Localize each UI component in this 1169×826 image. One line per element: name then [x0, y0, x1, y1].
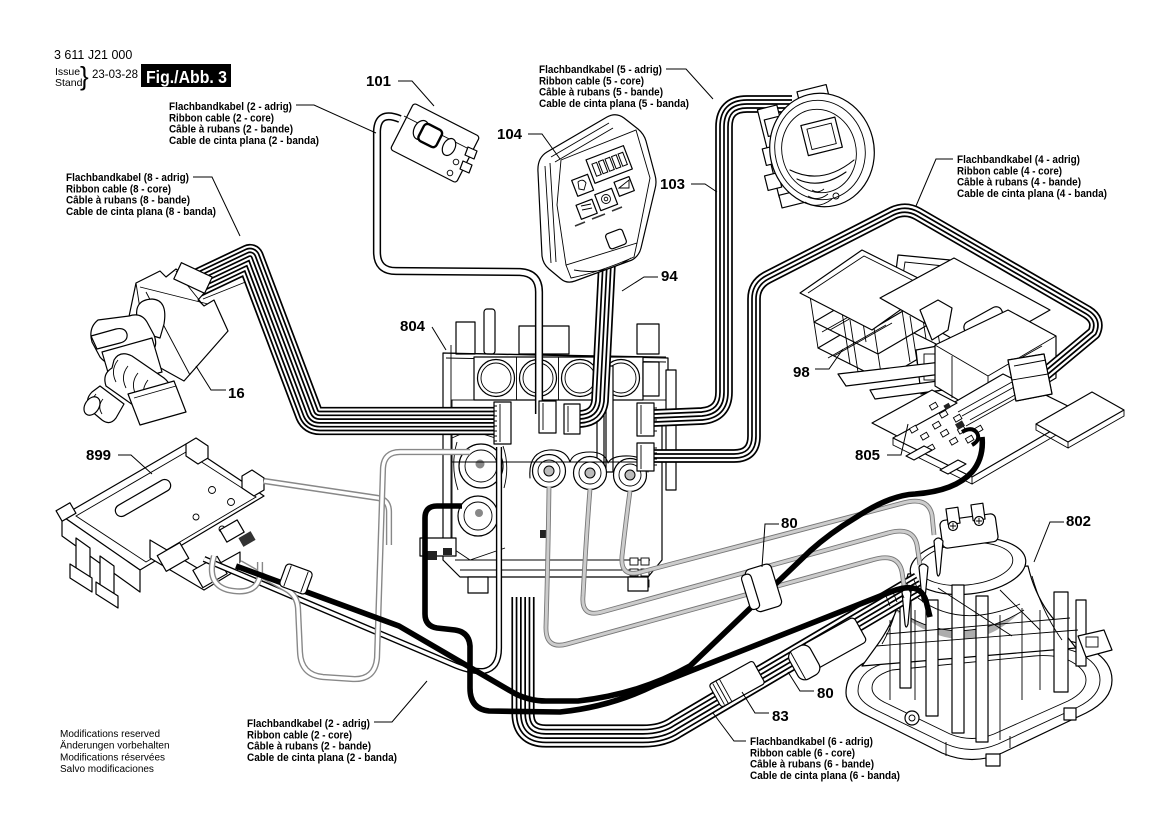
- svg-text:Stand: Stand: [55, 77, 83, 89]
- svg-text:Ribbon cable (6 - core): Ribbon cable (6 - core): [750, 747, 855, 759]
- svg-text:Ribbon cable (4 - core): Ribbon cable (4 - core): [957, 165, 1062, 177]
- svg-text:80: 80: [781, 515, 798, 532]
- svg-text:Ribbon cable (5 - core): Ribbon cable (5 - core): [539, 75, 644, 87]
- svg-text:101: 101: [366, 73, 391, 90]
- svg-text:Câble à rubans (4 - bande): Câble à rubans (4 - bande): [957, 177, 1081, 189]
- svg-text:Fig./Abb. 3: Fig./Abb. 3: [146, 67, 227, 87]
- svg-text:Flachbandkabel (5 - adrig): Flachbandkabel (5 - adrig): [539, 64, 662, 76]
- svg-text:Cable de cinta plana (2 - band: Cable de cinta plana (2 - banda): [169, 135, 319, 147]
- svg-text:Ribbon cable (2 - core): Ribbon cable (2 - core): [169, 112, 274, 124]
- svg-text:Modifications réservées: Modifications réservées: [60, 752, 165, 763]
- svg-text:98: 98: [793, 364, 810, 381]
- svg-text:3 611 J21 000: 3 611 J21 000: [54, 48, 132, 62]
- svg-text:83: 83: [772, 708, 789, 725]
- svg-text:Cable de cinta plana (2 - band: Cable de cinta plana (2 - banda): [247, 752, 397, 764]
- svg-text:Câble à rubans (2 - bande): Câble à rubans (2 - bande): [169, 124, 293, 136]
- svg-text:Flachbandkabel (8 - adrig): Flachbandkabel (8 - adrig): [66, 172, 189, 184]
- svg-text:Cable de cinta plana (8 - band: Cable de cinta plana (8 - banda): [66, 206, 216, 218]
- svg-text:Câble à rubans (2 - bande): Câble à rubans (2 - bande): [247, 741, 371, 753]
- svg-text:Câble à rubans (8 - bande): Câble à rubans (8 - bande): [66, 195, 190, 207]
- svg-text:899: 899: [86, 447, 111, 464]
- svg-text:16: 16: [228, 385, 245, 402]
- svg-text:Ribbon cable (2 - core): Ribbon cable (2 - core): [247, 729, 352, 741]
- svg-text:80: 80: [817, 685, 834, 702]
- svg-text:Änderungen vorbehalten: Änderungen vorbehalten: [60, 740, 170, 752]
- svg-text:Cable de cinta plana (5 - band: Cable de cinta plana (5 - banda): [539, 98, 689, 110]
- svg-text:Cable de cinta plana (6 - band: Cable de cinta plana (6 - banda): [750, 770, 900, 782]
- svg-text:23-03-28: 23-03-28: [92, 69, 138, 81]
- svg-text:Flachbandkabel (2 - adrig): Flachbandkabel (2 - adrig): [247, 718, 370, 730]
- svg-text:Flachbandkabel (6 - adrig): Flachbandkabel (6 - adrig): [750, 736, 873, 748]
- svg-text:805: 805: [855, 447, 880, 464]
- svg-text:Flachbandkabel (4 - adrig): Flachbandkabel (4 - adrig): [957, 154, 1080, 166]
- svg-text:103: 103: [660, 176, 685, 193]
- svg-text:804: 804: [400, 318, 426, 335]
- svg-text:Cable de cinta plana (4 - band: Cable de cinta plana (4 - banda): [957, 188, 1107, 200]
- svg-text:802: 802: [1066, 513, 1091, 530]
- svg-text:}: }: [80, 61, 89, 91]
- svg-text:Flachbandkabel (2 - adrig): Flachbandkabel (2 - adrig): [169, 101, 292, 113]
- svg-text:104: 104: [497, 126, 523, 143]
- svg-text:Câble à rubans (5 - bande): Câble à rubans (5 - bande): [539, 87, 663, 99]
- svg-text:Modifications reserved: Modifications reserved: [60, 729, 160, 740]
- svg-text:Câble à rubans (6 - bande): Câble à rubans (6 - bande): [750, 759, 874, 771]
- svg-text:Ribbon cable (8 - core): Ribbon cable (8 - core): [66, 183, 171, 195]
- svg-text:94: 94: [661, 268, 678, 285]
- svg-text:Salvo modificaciones: Salvo modificaciones: [60, 764, 154, 775]
